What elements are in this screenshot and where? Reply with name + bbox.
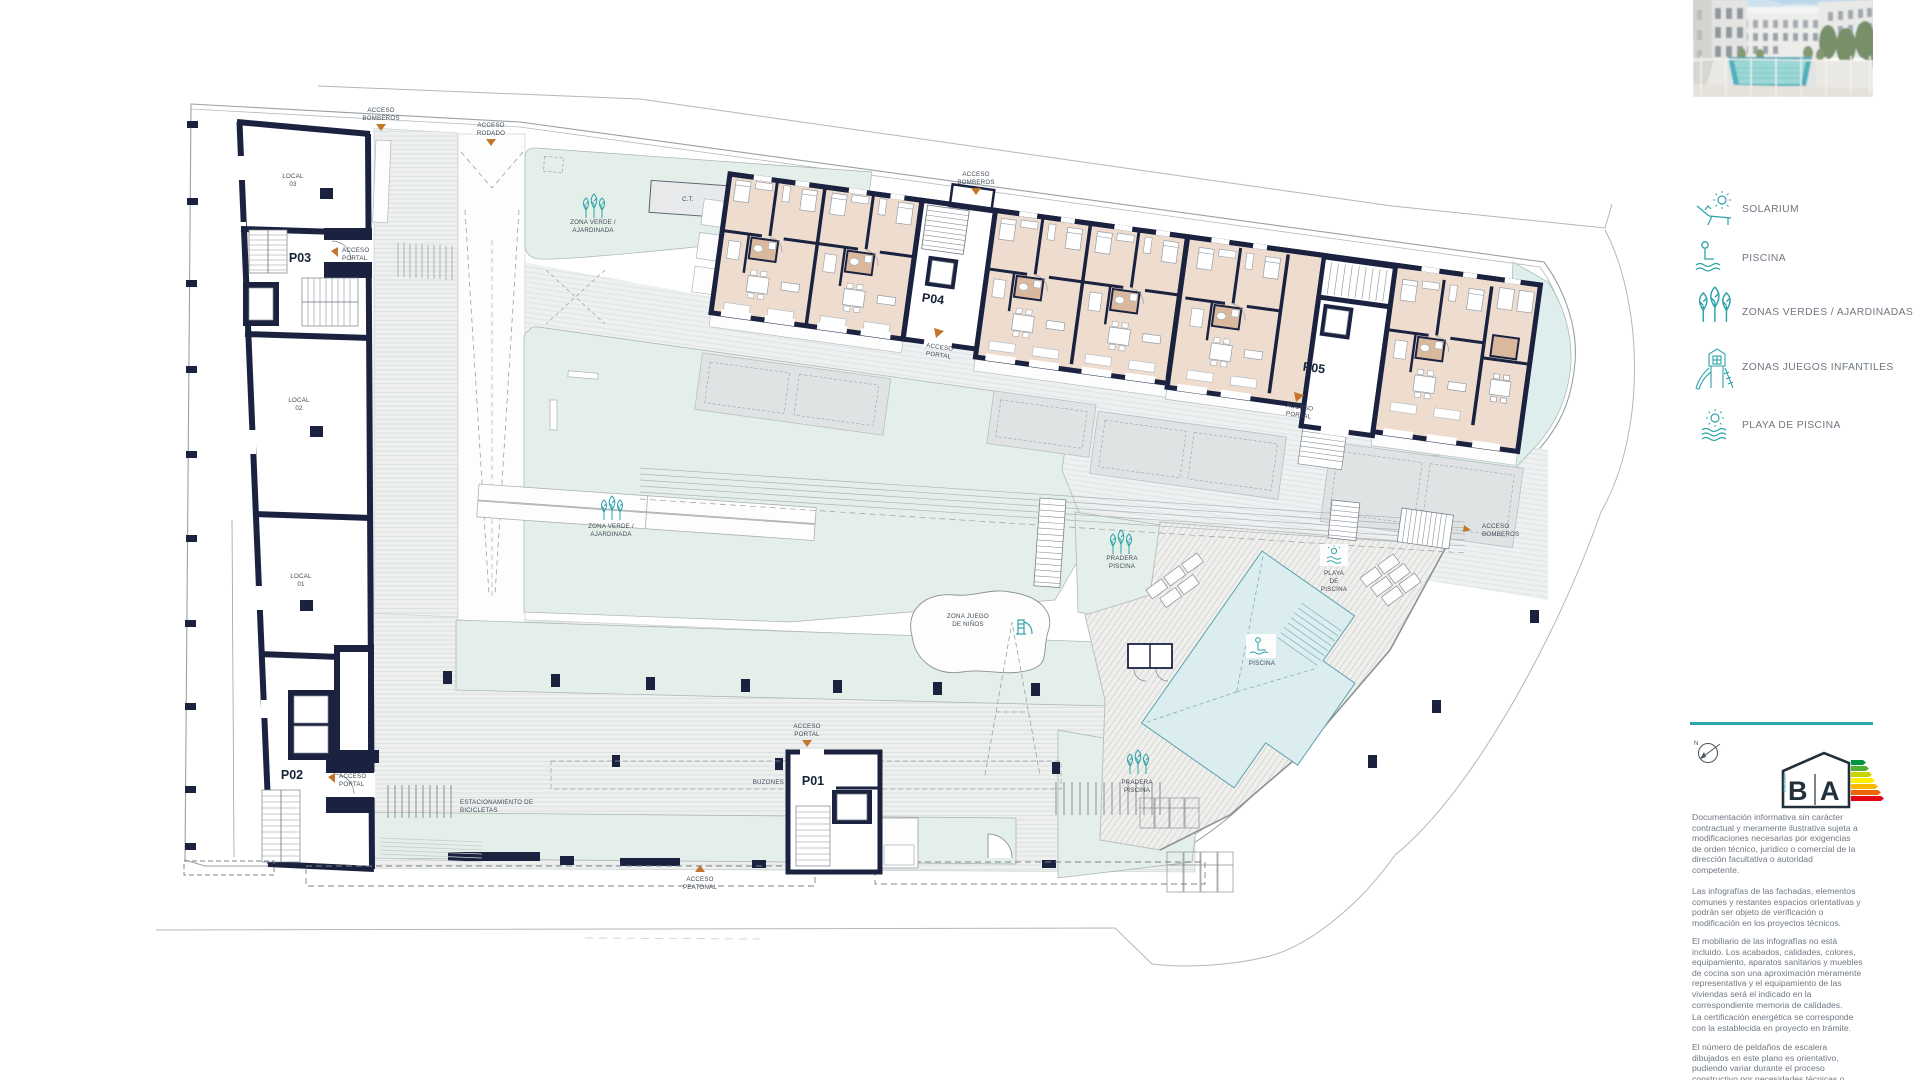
svg-text:P02: P02 <box>281 768 303 782</box>
svg-text:P05: P05 <box>1302 360 1326 377</box>
svg-text:C.T.: C.T. <box>682 196 694 203</box>
svg-text:ACCESO: ACCESO <box>339 773 366 780</box>
svg-text:PISCINA: PISCINA <box>1109 563 1136 570</box>
svg-text:ZONAS JUEGOS INFANTILES: ZONAS JUEGOS INFANTILES <box>1742 362 1894 373</box>
svg-text:ACCESO: ACCESO <box>367 107 394 114</box>
svg-text:PISCINA: PISCINA <box>1742 253 1786 264</box>
svg-text:ACCESO: ACCESO <box>686 876 713 883</box>
svg-text:N: N <box>1694 741 1698 747</box>
svg-text:BUZONES: BUZONES <box>753 779 784 786</box>
svg-text:RODADO: RODADO <box>477 130 505 137</box>
svg-text:ACCESO: ACCESO <box>793 723 820 730</box>
svg-text:AJARDINADA: AJARDINADA <box>572 227 614 234</box>
svg-text:PORTAL: PORTAL <box>342 255 368 262</box>
svg-text:A: A <box>1820 776 1840 806</box>
svg-text:PEATONAL: PEATONAL <box>683 884 717 891</box>
svg-text:ACCESO: ACCESO <box>962 171 989 178</box>
svg-text:ZONA VERDE /: ZONA VERDE / <box>588 523 634 530</box>
svg-text:02: 02 <box>295 405 303 412</box>
svg-text:ZONAS VERDES / AJARDINADAS: ZONAS VERDES / AJARDINADAS <box>1742 307 1913 318</box>
svg-text:ZONA JUEGO: ZONA JUEGO <box>947 613 989 620</box>
svg-text:LOCAL: LOCAL <box>282 173 304 180</box>
svg-text:PISCINA: PISCINA <box>1124 787 1151 794</box>
svg-text:ACCESO: ACCESO <box>477 122 504 129</box>
svg-text:PISCINA: PISCINA <box>1249 660 1276 667</box>
svg-text:P04: P04 <box>921 291 945 308</box>
svg-text:AJARDINADA: AJARDINADA <box>590 531 632 538</box>
svg-text:ACCESO: ACCESO <box>1482 523 1509 530</box>
svg-text:01: 01 <box>297 581 305 588</box>
svg-text:DE: DE <box>1330 578 1339 585</box>
svg-text:LOCAL: LOCAL <box>288 397 310 404</box>
svg-text:BOMBEROS: BOMBEROS <box>957 179 994 186</box>
svg-text:PLAYA: PLAYA <box>1324 570 1345 577</box>
svg-text:PRADERA: PRADERA <box>1121 779 1153 786</box>
svg-text:BOMBEROS: BOMBEROS <box>362 115 399 122</box>
svg-text:03: 03 <box>289 181 297 188</box>
svg-text:DE NIÑOS: DE NIÑOS <box>952 621 984 628</box>
svg-text:P01: P01 <box>802 774 824 788</box>
svg-text:LOCAL: LOCAL <box>290 573 312 580</box>
svg-text:PORTAL: PORTAL <box>339 781 365 788</box>
svg-text:B: B <box>1788 776 1808 806</box>
svg-text:PLAYA DE PISCINA: PLAYA DE PISCINA <box>1742 420 1841 431</box>
svg-text:P03: P03 <box>289 251 311 265</box>
svg-text:ENERGÍA: ENERGÍA <box>1782 773 1787 792</box>
svg-text:BICICLETAS: BICICLETAS <box>460 807 498 814</box>
svg-text:ZONA VERDE /: ZONA VERDE / <box>570 219 616 226</box>
svg-text:ACCESO: ACCESO <box>342 247 369 254</box>
svg-text:PORTAL: PORTAL <box>794 731 820 738</box>
svg-text:PRADERA: PRADERA <box>1106 555 1138 562</box>
svg-text:SOLARIUM: SOLARIUM <box>1742 204 1799 215</box>
svg-text:PISCINA: PISCINA <box>1321 586 1348 593</box>
svg-text:BOMBEROS: BOMBEROS <box>1482 531 1519 538</box>
svg-text:ESTACIONAMIENTO DE: ESTACIONAMIENTO DE <box>460 799 533 806</box>
